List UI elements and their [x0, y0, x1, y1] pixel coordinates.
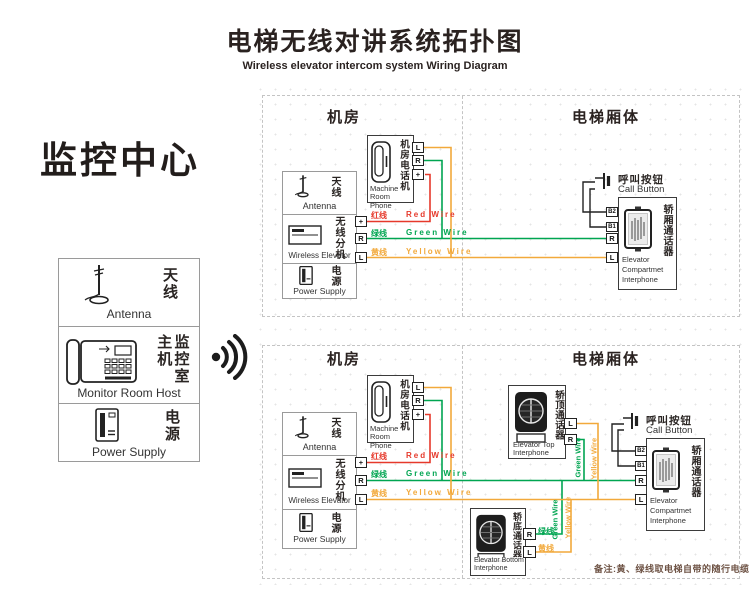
terminal-b2: B2 — [606, 207, 618, 217]
monitor-host-label-zh: 监控室主机 — [155, 334, 190, 388]
terminal-b2: B2 — [635, 446, 647, 456]
terminal-plus: + — [412, 409, 424, 420]
antenna-cell-bottom: 天线 Antenna — [283, 413, 356, 456]
machine-room-phone-top: 机房电话机 Machine Room Phone — [367, 135, 414, 203]
antenna-label-zh: 天线 — [327, 417, 342, 443]
elevator-bottom-interphone-label-en: Elevator Bottom Interphone — [474, 557, 524, 573]
terminal-plus: + — [412, 169, 424, 180]
station-box-top: 天线 Antenna 无线分机 Wireless Elevator 电源 Pow… — [282, 171, 357, 299]
wireless-cell-bottom: 无线分机 Wireless Elevator — [283, 455, 356, 510]
grille-interphone-icon — [651, 447, 681, 493]
terminal-plus: + — [355, 216, 367, 227]
yellow-wire-label-en: Yellow Wire — [406, 488, 472, 497]
wireless-extension-icon — [288, 468, 322, 488]
signal-waves-icon — [208, 334, 252, 380]
machine-room-phone-bottom: 机房电话机 Machine Room Phone — [367, 375, 414, 443]
monitor-center-box: 天线 Antenna 监控室主机 Monitor Room Host — [58, 258, 200, 462]
terminal-r: R — [606, 233, 618, 244]
terminal-l: L — [606, 252, 618, 263]
monitor-power-label-zh: 电源 — [161, 409, 182, 449]
antenna-icon — [81, 263, 117, 309]
red-wire-label-zh: 红线 — [371, 451, 387, 462]
red-wire-label-zh: 红线 — [371, 210, 387, 221]
yellow-wire-label-zh: 黄线 — [371, 488, 387, 499]
desk-phone-icon — [65, 338, 139, 386]
green-wire-label-en: Green Wire — [406, 469, 469, 478]
terminal-r: R — [523, 528, 536, 540]
yellow-wire-vertical-label: Yellow Wire — [590, 434, 599, 480]
terminal-l: L — [355, 252, 367, 263]
antenna-label-zh: 天线 — [327, 176, 342, 202]
elevator-top-interphone-label-zh: 轿顶通话器 — [551, 390, 565, 442]
monitor-power-cell: 电源 Power Supply — [59, 403, 199, 461]
power-cell-top: 电源 Power Supply — [283, 263, 356, 298]
monitor-host-cell: 监控室主机 Monitor Room Host — [59, 326, 199, 404]
compartment-interphone-label-zh: 轿厢通话器 — [659, 204, 674, 260]
yellow-wire-short-label: 黄线 — [538, 543, 554, 554]
wall-phone-icon — [371, 141, 391, 183]
terminal-b1: B1 — [606, 222, 618, 232]
green-wire-label-zh: 绿线 — [371, 469, 387, 480]
antenna-icon — [293, 415, 313, 441]
elevator-top-interphone-label-en: Elevator Top Interphone — [513, 441, 563, 458]
monitor-host-label-en: Monitor Room Host — [59, 386, 199, 400]
antenna-label-en: Antenna — [283, 201, 356, 211]
yellow-wire-vertical-label: Yellow Wire — [564, 493, 573, 539]
monitor-antenna-label-en: Antenna — [59, 307, 199, 321]
compartment-interphone-label-en: Elevator Compartmet Interphone — [622, 255, 674, 285]
compartment-interphone-label-zh: 轿厢通话器 — [687, 445, 702, 501]
terminal-r: R — [412, 395, 424, 406]
green-wire-vertical-label: Green Wire — [574, 432, 583, 478]
power-label-en: Power Supply — [283, 286, 356, 296]
wall-phone-icon — [371, 381, 391, 423]
terminal-l: L — [523, 546, 536, 558]
terminal-l: L — [355, 494, 367, 505]
compartment-interphone-top: 轿厢通话器 Elevator Compartmet Interphone — [618, 197, 677, 290]
monitor-antenna-cell: 天线 Antenna — [59, 259, 199, 327]
speaker-interphone-icon — [475, 514, 507, 562]
terminal-b1: B1 — [635, 461, 647, 471]
terminal-l: L — [635, 494, 647, 505]
power-supply-icon — [299, 266, 313, 285]
speaker-interphone-icon — [514, 391, 548, 443]
wireless-extension-icon — [288, 225, 322, 245]
power-cell-bottom: 电源 Power Supply — [283, 509, 356, 548]
wireless-label-en: Wireless Elevator — [283, 251, 356, 260]
machine-room-phone-label-en: Machine Room Phone — [370, 185, 411, 210]
terminal-r: R — [635, 475, 647, 486]
call-button-icon — [623, 412, 641, 434]
wireless-cell-top: 无线分机 Wireless Elevator — [283, 214, 356, 264]
monitor-power-label-en: Power Supply — [59, 445, 199, 459]
antenna-label-en: Antenna — [283, 442, 356, 452]
terminal-l: L — [412, 382, 424, 393]
power-label-en: Power Supply — [283, 534, 356, 544]
terminal-r: R — [355, 475, 367, 486]
grille-interphone-icon — [623, 206, 653, 252]
red-wire-label-en: Red Wire — [406, 451, 457, 460]
red-wire-label-en: Red Wire — [406, 210, 457, 219]
station-box-bottom: 天线 Antenna 无线分机 Wireless Elevator 电源 Pow… — [282, 412, 357, 549]
yellow-wire-label-zh: 黄线 — [371, 247, 387, 258]
green-wire-vertical-label: Green Wire — [551, 494, 560, 540]
antenna-cell-top: 天线 Antenna — [283, 172, 356, 215]
terminal-l: L — [412, 142, 424, 153]
power-supply-icon — [95, 408, 119, 442]
compartment-interphone-bottom: 轿厢通话器 Elevator Compartmet Interphone — [646, 438, 705, 531]
elevator-top-interphone: 轿顶通话器 Elevator Top Interphone — [508, 385, 566, 459]
terminal-r: R — [355, 233, 367, 244]
yellow-wire-label-en: Yellow Wire — [406, 247, 472, 256]
antenna-icon — [293, 174, 313, 200]
wireless-label-en: Wireless Elevator — [283, 496, 356, 505]
green-wire-label-en: Green Wire — [406, 228, 469, 237]
wiring-diagram-page: 电梯无线对讲系统拓扑图 Wireless elevator intercom s… — [0, 0, 750, 589]
machine-room-phone-label-en: Machine Room Phone — [370, 425, 411, 450]
green-wire-label-zh: 绿线 — [371, 228, 387, 239]
terminal-r: R — [412, 155, 424, 166]
compartment-interphone-label-en: Elevator Compartmet Interphone — [650, 496, 702, 526]
power-label-zh: 电源 — [327, 512, 342, 536]
elevator-bottom-interphone: 轿底通话器 Elevator Bottom Interphone — [470, 508, 526, 576]
terminal-plus: + — [355, 457, 367, 468]
terminal-l: L — [564, 418, 577, 429]
call-button-icon — [595, 172, 613, 194]
power-supply-icon — [299, 513, 313, 532]
monitor-antenna-label-zh: 天线 — [159, 267, 180, 307]
